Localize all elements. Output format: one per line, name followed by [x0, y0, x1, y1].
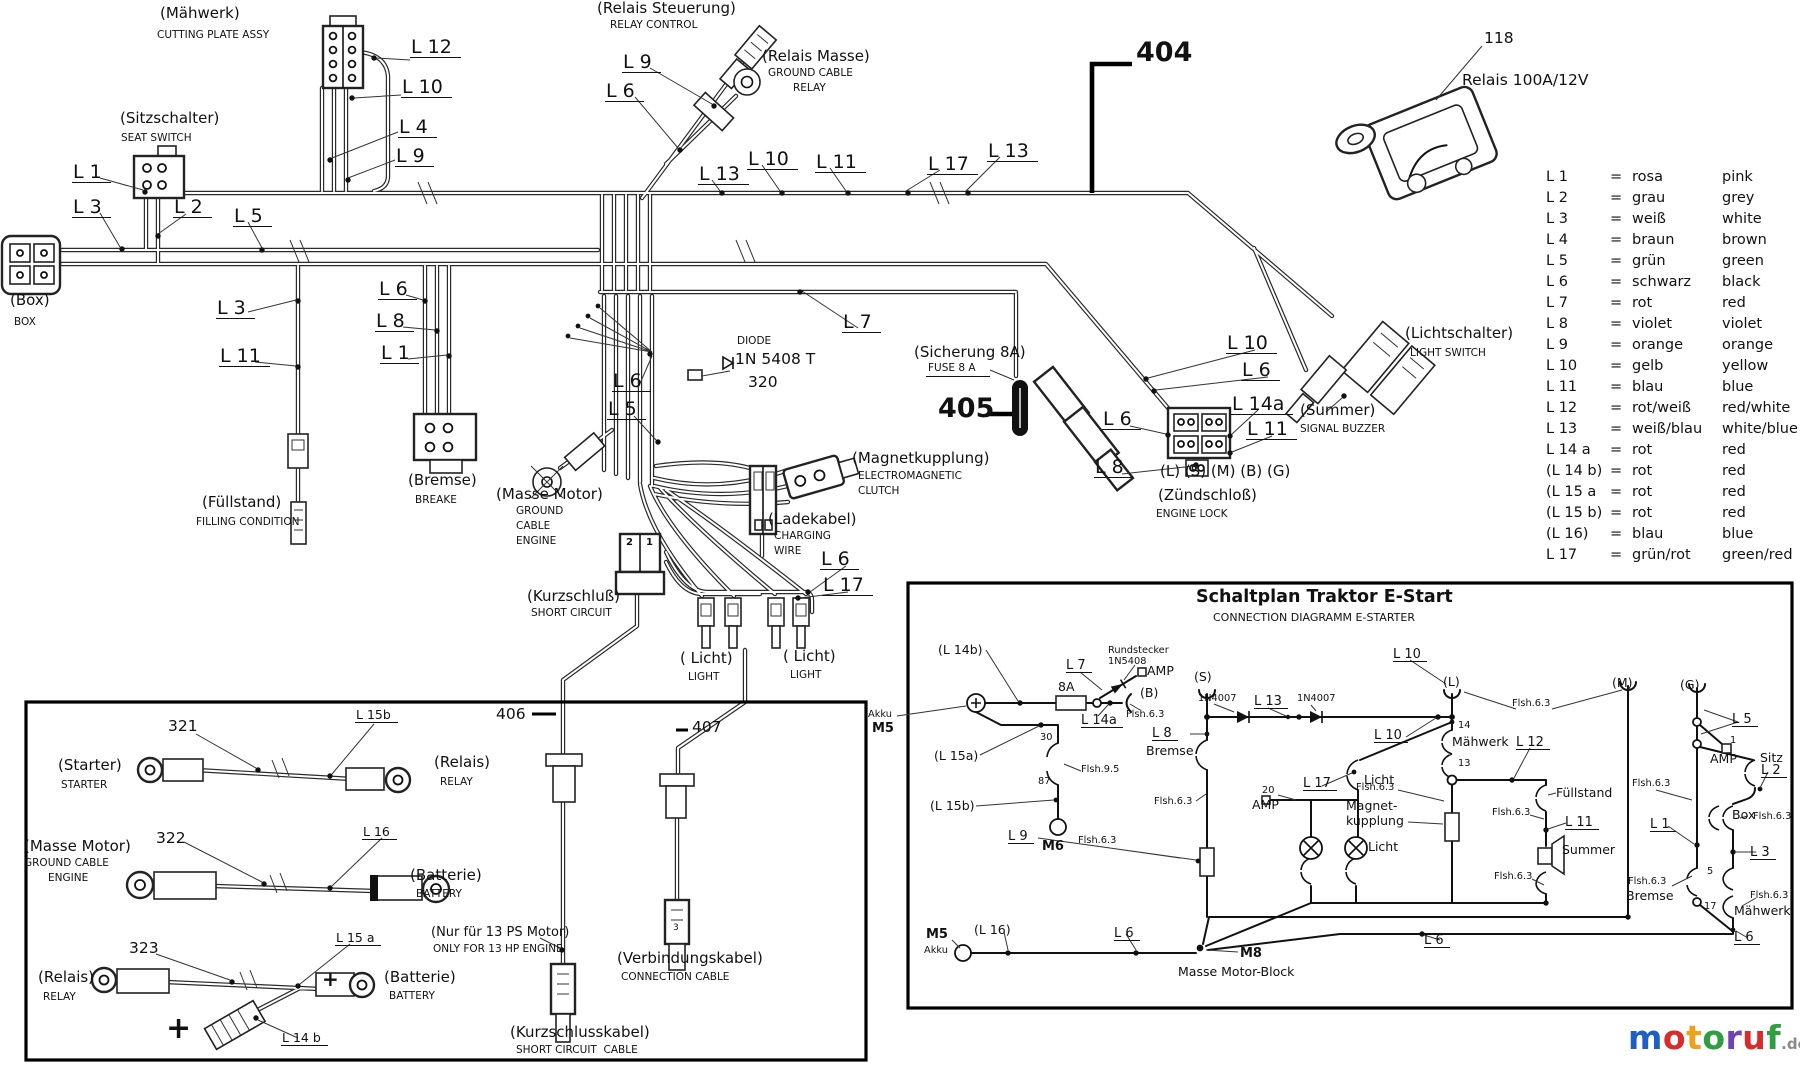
legend-row: (L 15 a=rotred — [1546, 484, 1798, 505]
wire-tag-l1: L 1 — [72, 163, 111, 183]
box-label-de: (Box) — [10, 292, 50, 309]
ladekabel-label-en1: CHARGING — [774, 531, 831, 543]
sch-8a: 8A — [1058, 680, 1075, 694]
legend-row: L 17=grün/rotgreen/red — [1546, 547, 1798, 568]
legend-row: (L 15 b)=rotred — [1546, 505, 1798, 526]
sch-pin14: 14 — [1458, 721, 1470, 732]
wire-tag-l8b: L 8 — [1094, 458, 1133, 478]
sch-g-terminal: (G) — [1680, 678, 1699, 692]
wire-tag-l5b: L 5 — [607, 400, 646, 420]
sch-magnet2: kupplung — [1346, 814, 1404, 828]
wire-tag-l6c: L 6 — [612, 372, 651, 392]
legend-row: L 4=braunbrown — [1546, 232, 1798, 253]
sch-flsh-l9: Flsh.6.3 — [1078, 836, 1116, 847]
zuendschloss-label-en: ENGINE LOCK — [1156, 509, 1228, 521]
batterie1-label-de: (Batterie) — [410, 867, 482, 884]
relais-r3-label-de: (Relais) — [38, 969, 94, 986]
kurzschlusskabel-label-en: SHORT CIRCUIT CABLE — [516, 1045, 638, 1057]
summer-label-en: SIGNAL BUZZER — [1300, 424, 1385, 436]
wire-tag-l9: L 9 — [395, 147, 434, 167]
sch-l5: L 5 — [1732, 713, 1758, 727]
sch-pin87: 87 — [1038, 777, 1050, 788]
bremse-label-en: BREAKE — [415, 495, 457, 507]
sch-l8: L 8 — [1152, 727, 1178, 741]
sch-flsh-magnet: Flsh.6.3 — [1356, 783, 1394, 794]
wiring-diagram-page: (Mähwerk) CUTTING PLATE ASSY (Sitzschalt… — [0, 0, 1800, 1070]
sch-flsh-bremse2: Flsh.6.3 — [1628, 877, 1666, 888]
sch-l3: L 3 — [1750, 846, 1776, 860]
marker-405: 405 — [938, 394, 994, 424]
magnetkupplung-label-en2: CLUTCH — [858, 486, 899, 498]
schematic-subtitle: CONNECTION DIAGRAMM E-STARTER — [1213, 612, 1415, 624]
legend-de: rosa — [1632, 169, 1722, 185]
lichtschalter-label-en: LIGHT SWITCH — [1410, 348, 1486, 360]
sch-box: Box — [1732, 808, 1755, 822]
marker-404: 404 — [1136, 38, 1192, 68]
relais-r1-label-en: RELAY — [440, 777, 473, 789]
part-323-wire: L 15 a — [335, 931, 381, 946]
sch-flsh95: Flsh.9.5 — [1081, 765, 1119, 776]
verbindungskabel-label-en: CONNECTION CABLE — [621, 972, 729, 984]
zuendschloss-pins: (L) (S) (M) (B) (G) — [1160, 463, 1290, 480]
sch-m5-bottom: M5 — [926, 928, 948, 943]
masse-motor-label-en1: GROUND — [516, 506, 563, 518]
wire-tag-l10: L 10 — [401, 78, 452, 98]
part-407-number: 407 — [692, 719, 722, 736]
legend-row: L 12=rot/weißred/white — [1546, 400, 1798, 421]
sch-1: 1 — [1730, 736, 1736, 747]
magnetkupplung-label-en1: ELECTROMAGNETIC — [858, 471, 962, 483]
sch-flsh-maehwerk: Flsh.6.3 — [1750, 891, 1788, 902]
wire-tag-l14a: L 14a — [1231, 395, 1293, 415]
lichtschalter-label-de: (Lichtschalter) — [1405, 325, 1513, 342]
sch-l15a: (L 15a) — [934, 749, 978, 763]
wire-tag-l2: L 2 — [173, 198, 212, 218]
nur13ps-note-en: ONLY FOR 13 HP ENGINE — [433, 944, 563, 956]
kurzschluss-label-de: (Kurzschluß) — [527, 588, 620, 605]
sch-20: 20 — [1262, 786, 1274, 797]
legend-row: L 14 a=rotred — [1546, 442, 1798, 463]
part-323-number: 323 — [129, 940, 159, 957]
legend-en: pink — [1722, 169, 1753, 185]
masse-motor-label-en2: CABLE — [516, 521, 550, 533]
wire-tag-l11c: L 11 — [1246, 420, 1297, 440]
legend-id: L 1 — [1546, 169, 1610, 185]
sch-l17: L 17 — [1303, 777, 1337, 791]
part-321-wire: L 15b — [355, 708, 398, 723]
sch-bremse2: Bremse — [1626, 889, 1674, 903]
legend-row: L 8=violetviolet — [1546, 316, 1798, 337]
maehwerk-label-de: (Mähwerk) — [160, 5, 240, 22]
wire-tag-l13b: L 13 — [987, 142, 1038, 162]
licht2-label-en: LIGHT — [790, 670, 821, 682]
legend-row: L 10=gelbyellow — [1546, 358, 1798, 379]
diode-number: 320 — [748, 374, 778, 391]
kurzschluss-label-en: SHORT CIRCUIT — [531, 608, 612, 620]
motoruf-logo: motoruf.de — [1628, 1018, 1800, 1057]
sch-pin5: 5 — [1707, 867, 1713, 878]
plus-mark-big: + — [166, 1012, 191, 1046]
wire-tag-l12: L 12 — [410, 38, 461, 58]
relais-masse-label-en1: GROUND CABLE — [768, 68, 853, 80]
schematic-title: Schaltplan Traktor E-Start — [1196, 588, 1453, 608]
sch-l6-c: L 6 — [1734, 931, 1760, 945]
diode-title: DIODE — [737, 336, 771, 348]
relais-steuerung-label-en: RELAY CONTROL — [610, 20, 697, 32]
sicherung-label-en: FUSE 8 A — [926, 363, 990, 377]
sicherung-label-de: (Sicherung 8A) — [914, 344, 1026, 361]
sch-flsh-fuellstand: Flsh.6.3 — [1492, 808, 1530, 819]
sch-flsh-lm: Flsh.6.3 — [1512, 699, 1550, 710]
sch-bremse1: Bremse — [1146, 744, 1194, 758]
kurzschlusskabel-label-de: (Kurzschlusskabel) — [510, 1024, 650, 1041]
relais-steuerung-label-de: (Relais Steuerung) — [597, 0, 736, 17]
wire-tag-l11: L 11 — [219, 347, 270, 367]
sch-amp1: AMP — [1147, 664, 1174, 678]
part-322-number: 322 — [156, 830, 186, 847]
wire-tag-l6f: L 6 — [1102, 410, 1141, 430]
connector-pin-3: 3 — [673, 923, 679, 933]
batterie1-label-en: BATTERY — [416, 889, 462, 901]
wire-tag-l10b: L 10 — [747, 150, 798, 170]
diode-part: 1N 5408 T — [735, 351, 815, 368]
sch-masse-motor-block: Masse Motor-Block — [1178, 965, 1294, 979]
sch-l7: L 7 — [1066, 659, 1092, 673]
legend-row: L 6=schwarzblack — [1546, 274, 1798, 295]
sch-akku: Akku — [868, 710, 892, 721]
legend-row: L 11=blaublue — [1546, 379, 1798, 400]
sch-l6-a: L 6 — [1114, 927, 1140, 941]
fuellstand-label-en: FILLING CONDITION — [196, 517, 300, 529]
sch-l2: L 2 — [1761, 764, 1787, 778]
sch-l-terminal: (L) — [1443, 675, 1460, 689]
legend-row: (L 14 b)=rotred — [1546, 463, 1798, 484]
logo-letter: f — [1766, 1018, 1781, 1057]
licht1-label-en: LIGHT — [688, 672, 719, 684]
wire-tag-l4: L 4 — [398, 118, 437, 138]
wire-tag-l3: L 3 — [72, 198, 111, 218]
wire-tag-l17: L 17 — [927, 155, 978, 175]
sch-1n4007-a: 1N4007 — [1198, 694, 1237, 705]
relay-118-name: Relais 100A/12V — [1462, 72, 1588, 89]
logo-letter: o — [1702, 1018, 1725, 1057]
wire-tag-l3b: L 3 — [216, 299, 255, 319]
wire-tag-l6d: L 6 — [820, 550, 859, 570]
ladekabel-label-en2: WIRE — [774, 546, 801, 558]
wire-tag-l13: L 13 — [698, 165, 749, 185]
sch-s-terminal: (S) — [1194, 670, 1212, 684]
diagram-artwork — [0, 0, 1800, 1070]
masse-motor2-label-en2: ENGINE — [48, 873, 88, 885]
relais-r3-label-en: RELAY — [43, 992, 76, 1004]
logo-letter: m — [1628, 1018, 1663, 1057]
logo-suffix: .de — [1781, 1035, 1800, 1053]
wire-tag-l11b: L 11 — [815, 153, 866, 173]
sitzschalter-label-de: (Sitzschalter) — [120, 110, 219, 127]
sch-l9: L 9 — [1008, 830, 1034, 844]
sch-1n5408: 1N5408 — [1108, 657, 1147, 668]
sch-l16: (L 16) — [974, 923, 1011, 937]
wire-color-legend: L 1=rosapink L 2=graugrey L 3=weißwhite … — [1546, 169, 1798, 568]
sch-maehwerk1: Mähwerk — [1452, 735, 1509, 749]
zuendschloss-label-de: (Zündschloß) — [1158, 487, 1257, 504]
ladekabel-label-de: (Ladekabel) — [768, 511, 857, 528]
connector-graphics — [2, 16, 1500, 1049]
masse-motor2-label-en1: GROUND CABLE — [24, 858, 109, 870]
sch-m6: M6 — [1042, 840, 1064, 855]
part-406-number: 406 — [496, 706, 526, 723]
logo-letter: r — [1726, 1018, 1743, 1057]
sch-summer: Summer — [1562, 843, 1615, 857]
wire-tag-l1b: L 1 — [380, 344, 419, 364]
sch-amp2: AMP — [1252, 798, 1279, 812]
starter-label-de: (Starter) — [58, 757, 122, 774]
legend-row: L 9=orangeorange — [1546, 337, 1798, 358]
plus-mark-small: + — [322, 968, 339, 990]
sch-licht2: Licht — [1368, 840, 1398, 854]
masse-motor2-label-de: (Masse Motor) — [24, 838, 131, 855]
legend-row: (L 16)=blaublue — [1546, 526, 1798, 547]
sitzschalter-label-en: SEAT SWITCH — [121, 133, 192, 145]
wire-tag-l8: L 8 — [375, 312, 414, 332]
logo-letter: o — [1663, 1018, 1686, 1057]
sch-flsh-summer: Flsh.6.3 — [1494, 872, 1532, 883]
harness-cables — [62, 44, 1332, 1020]
wire-tag-l9b: L 9 — [622, 53, 661, 73]
legend-row: L 3=weißwhite — [1546, 211, 1798, 232]
relay-118-number: 118 — [1484, 30, 1514, 47]
sch-m-terminal: (M) — [1612, 676, 1633, 690]
bremse-label-de: (Bremse) — [408, 472, 477, 489]
legend-row: L 2=graugrey — [1546, 190, 1798, 211]
sch-l14b: (L 14b) — [938, 643, 983, 657]
sch-1n4007-b: 1N4007 — [1297, 694, 1336, 705]
verbindungskabel-label-de: (Verbindungskabel) — [617, 950, 763, 967]
masse-motor-label-de: (Masse Motor) — [496, 486, 603, 503]
sch-flsh-b: Flsh.6.3 — [1126, 710, 1164, 721]
legend-row: L 5=grüngreen — [1546, 253, 1798, 274]
magnetkupplung-label-de: (Magnetkupplung) — [852, 450, 989, 467]
legend-row: L 1=rosapink — [1546, 169, 1798, 190]
part-321-number: 321 — [168, 718, 198, 735]
part-l14b-wire: L 14 b — [281, 1031, 328, 1046]
wire-tag-l7: L 7 — [842, 313, 881, 333]
sch-flsh-box: Flsh.6.3 — [1753, 812, 1791, 823]
sch-l10-a: L 10 — [1393, 648, 1427, 662]
relais-masse-label-de: (Relais Masse) — [762, 48, 870, 65]
logo-letter: u — [1742, 1018, 1766, 1057]
maehwerk-label-en: CUTTING PLATE ASSY — [157, 30, 269, 42]
sch-pin13: 13 — [1458, 759, 1470, 770]
fuellstand-label-de: (Füllstand) — [202, 494, 281, 511]
relais-r1-label-de: (Relais) — [434, 754, 490, 771]
wire-tag-l17b: L 17 — [822, 576, 873, 596]
sch-magnet1: Magnet- — [1346, 799, 1397, 813]
sch-pin17: 17 — [1704, 902, 1716, 913]
wire-tag-l6b: L 6 — [605, 82, 644, 102]
sch-l13: L 13 — [1254, 695, 1288, 709]
sch-b-terminal: (B) — [1140, 686, 1158, 700]
licht2-label-de: ( Licht) — [783, 648, 836, 665]
sch-l10-b: L 10 — [1374, 729, 1408, 743]
sch-l12: L 12 — [1516, 736, 1550, 750]
sch-flsh-sitz: Flsh.6.3 — [1632, 779, 1670, 790]
sch-m8: M8 — [1240, 947, 1262, 962]
batterie2-label-de: (Batterie) — [384, 969, 456, 986]
sch-l6-b: L 6 — [1424, 934, 1450, 948]
wire-tag-l6e: L 6 — [1241, 361, 1280, 381]
kurzschluss-pin-1: 1 — [646, 537, 653, 548]
sch-l15b: (L 15b) — [930, 799, 975, 813]
sch-flsh-bremse: Flsh.6.3 — [1154, 797, 1192, 808]
wire-tag-l5: L 5 — [233, 207, 272, 227]
sch-akku-bottom: Akku — [924, 946, 948, 957]
sch-l11: L 11 — [1565, 816, 1599, 830]
starter-label-en: STARTER — [61, 780, 107, 792]
schematic-frame — [908, 583, 1792, 1008]
licht1-label-de: ( Licht) — [680, 650, 733, 667]
sch-pin30: 30 — [1040, 733, 1052, 744]
sch-fuellstand: Füllstand — [1556, 786, 1612, 800]
sch-m5: M5 — [872, 722, 894, 737]
part-322-wire: L 16 — [362, 825, 397, 840]
legend-row: L 7=rotred — [1546, 295, 1798, 316]
box-label-en: BOX — [14, 317, 36, 329]
sch-maehwerk2: Mähwerk — [1734, 904, 1791, 918]
sch-l14a: L 14a — [1081, 714, 1123, 728]
sch-amp3: AMP — [1710, 752, 1737, 766]
relais-masse-label-en2: RELAY — [793, 83, 826, 95]
legend-row: L 13=weiß/blauwhite/blue — [1546, 421, 1798, 442]
summer-label-de: (Summer) — [1300, 402, 1375, 419]
masse-motor-label-en3: ENGINE — [516, 536, 556, 548]
kurzschluss-pin-2: 2 — [626, 537, 633, 548]
nur13ps-note-de: (Nur für 13 PS Motor) — [431, 926, 569, 941]
logo-letter: t — [1686, 1018, 1702, 1057]
batterie2-label-en: BATTERY — [389, 991, 435, 1003]
wire-tag-l6: L 6 — [378, 280, 417, 300]
sch-l1: L 1 — [1650, 818, 1676, 832]
wire-tag-l10c: L 10 — [1226, 334, 1277, 354]
